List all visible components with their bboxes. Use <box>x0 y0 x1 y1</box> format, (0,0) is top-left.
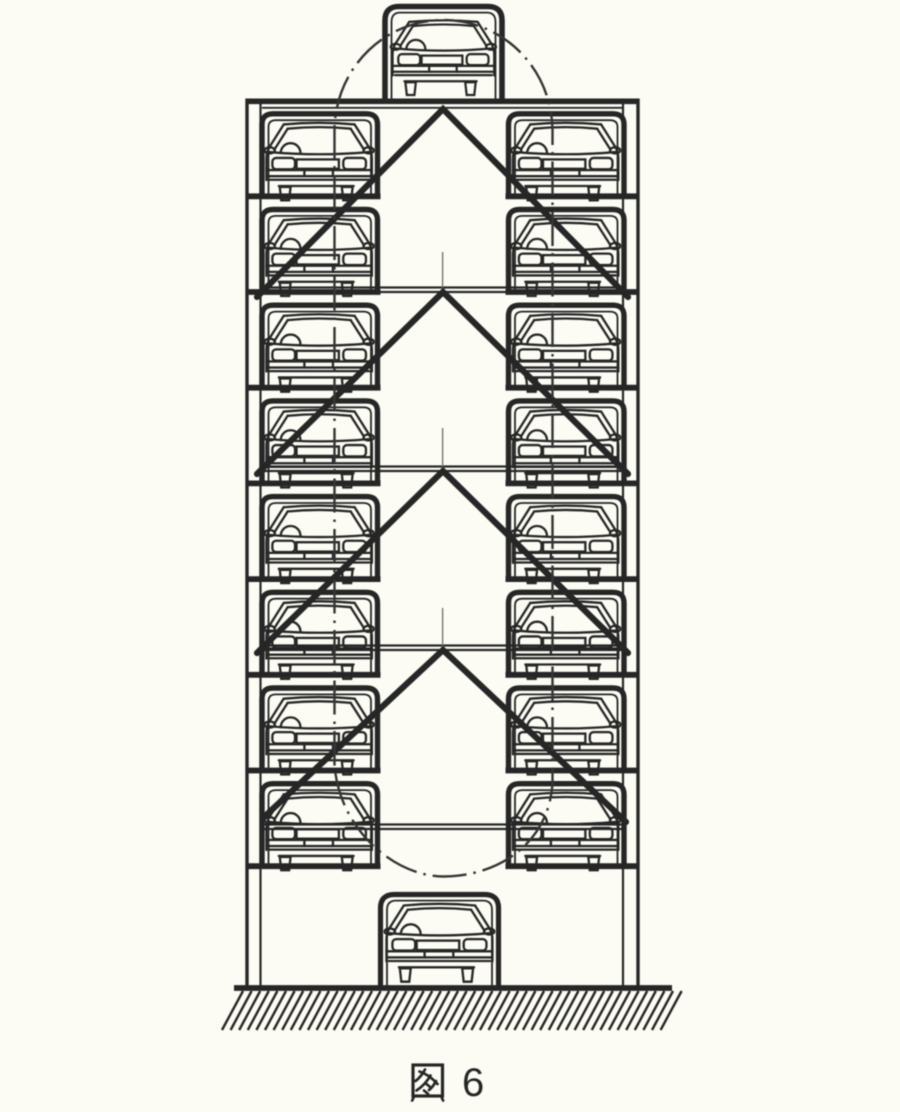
svg-text:6: 6 <box>462 1061 484 1105</box>
